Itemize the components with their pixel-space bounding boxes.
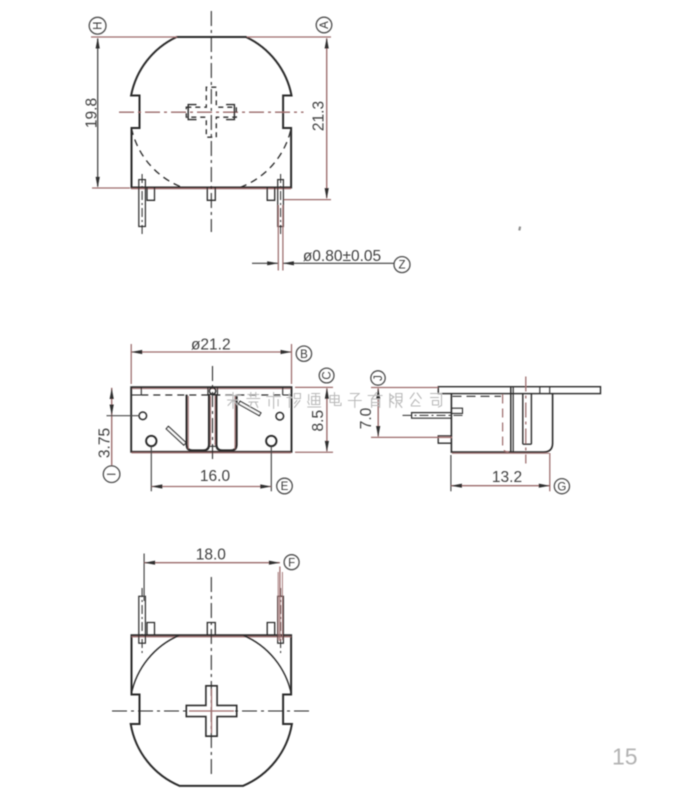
svg-text:16.0: 16.0 [200, 468, 231, 485]
svg-text:J: J [373, 375, 385, 381]
svg-text:ø21.2: ø21.2 [191, 337, 231, 354]
svg-text:21.3: 21.3 [311, 101, 328, 131]
svg-text:13.2: 13.2 [492, 469, 522, 486]
svg-text:ø0.80±0.05: ø0.80±0.05 [303, 248, 381, 265]
svg-text:A: A [319, 21, 331, 29]
svg-text:Z: Z [398, 260, 405, 272]
svg-text:19.8: 19.8 [84, 98, 101, 128]
svg-text:B: B [300, 349, 308, 361]
svg-text:7.0: 7.0 [358, 407, 375, 429]
svg-text:8.5: 8.5 [310, 410, 327, 432]
svg-text:3.75: 3.75 [97, 428, 114, 458]
svg-text:F: F [288, 557, 295, 569]
svg-text:E: E [281, 481, 289, 493]
svg-text:I: I [107, 473, 119, 476]
svg-text:H: H [93, 22, 105, 30]
svg-text:G: G [557, 481, 566, 493]
svg-text:C: C [322, 371, 334, 379]
svg-text:18.0: 18.0 [196, 547, 227, 564]
svg-text:15: 15 [612, 744, 638, 770]
